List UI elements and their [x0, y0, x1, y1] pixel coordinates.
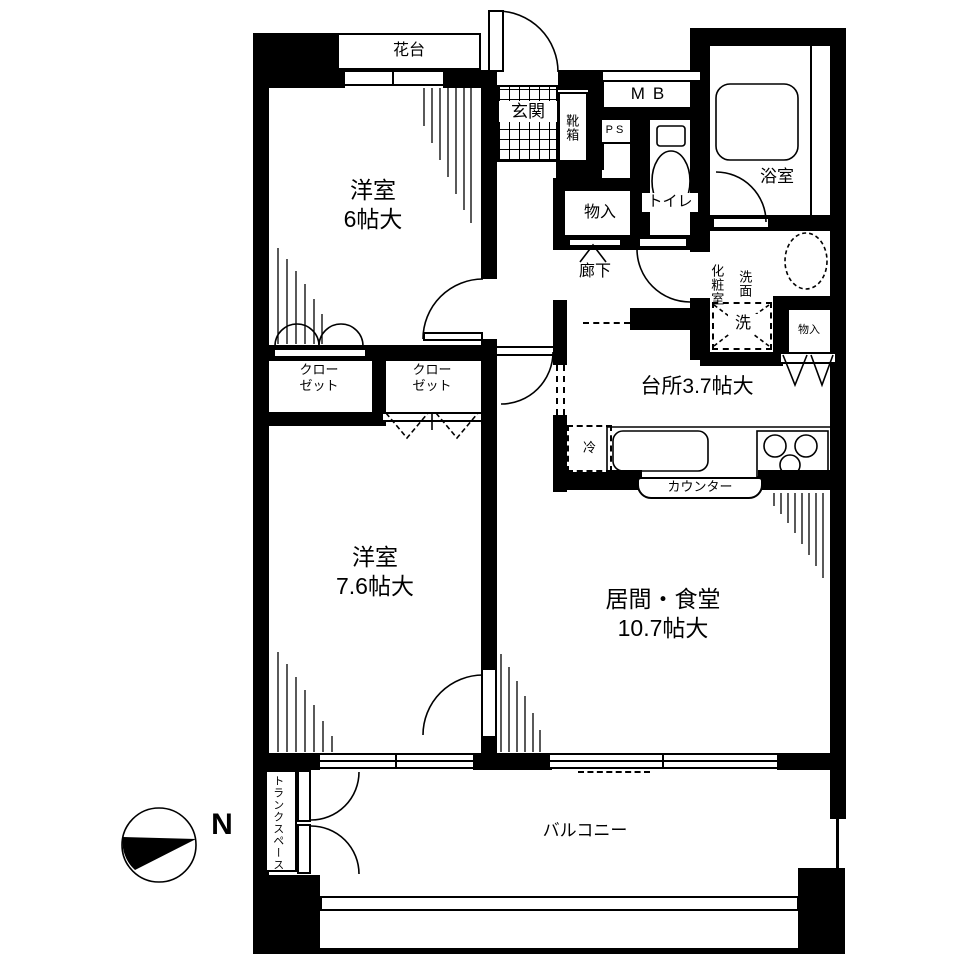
living-name: 居間・食堂 [553, 585, 773, 614]
entrance-door-arc [497, 11, 558, 72]
wash-storage-label: 物入 [786, 324, 832, 338]
bedroom6-door-arc [423, 279, 483, 339]
closet1-label: クロー ゼット [267, 362, 371, 395]
kitchen-counter-edge [607, 427, 830, 470]
living-size: 10.7帖大 [553, 614, 773, 643]
bathtub [716, 84, 798, 160]
kitchen-door-arc [501, 352, 553, 404]
bedroom76-name: 洋室 [295, 543, 455, 572]
closet1-line1: クロー [267, 362, 371, 378]
bedroom76-label: 洋室 7.6帖大 [295, 543, 455, 601]
refrigerator-label: 冷 [571, 440, 608, 456]
washstand-label: 洗面 [736, 243, 752, 325]
living-label: 居間・食堂 10.7帖大 [553, 585, 773, 643]
bedroom6-size: 6帖大 [308, 205, 438, 234]
closet2-label: クロー ゼット [383, 362, 481, 395]
counter-label: カウンター [637, 479, 763, 495]
bath-label: 浴室 [742, 166, 812, 187]
meter-box-label: MB [603, 83, 700, 104]
bedroom76-size: 7.6帖大 [295, 572, 455, 601]
closet1-line2: ゼット [267, 378, 371, 394]
entrance-label: 玄関 [499, 101, 557, 122]
toilet-label: トイレ [642, 193, 698, 212]
shoe-box-label: 靴箱 [563, 98, 579, 158]
kitchen-sink [613, 431, 708, 471]
bedroom76-door-arc [423, 675, 483, 735]
trunk-space-label: トランクスペース [270, 775, 284, 869]
stove-burner [795, 435, 817, 457]
floor-plan: 花台 玄関 靴箱 MB PS トイレ 浴室 化粧室 洗面 洗 物入 物入 廊下 … [0, 0, 960, 960]
balcony-label: バルコニー [495, 820, 675, 841]
washer-label: 洗 [728, 314, 758, 334]
closet2-line1: クロー [383, 362, 481, 378]
flower-stand-label: 花台 [337, 41, 481, 61]
bedroom6-name: 洋室 [308, 176, 438, 205]
trunk-door-arc [311, 826, 359, 874]
washbasin [785, 233, 827, 289]
plan-linework [0, 0, 960, 960]
powder-room-label: 化粧室 [708, 237, 724, 333]
compass-needle [123, 837, 196, 870]
compass-north-label: N [200, 806, 244, 844]
hall-storage-fold-symbol [580, 245, 606, 262]
kitchen-label: 台所3.7帖大 [597, 374, 797, 400]
hall-storage-label: 物入 [565, 203, 635, 223]
toilet-door-arc [637, 249, 690, 302]
toilet-tank [657, 126, 685, 146]
stove-burner [764, 435, 786, 457]
closet-bifold-symbol [275, 324, 363, 346]
bedroom6-label: 洋室 6帖大 [308, 176, 438, 234]
closet2-line2: ゼット [383, 378, 481, 394]
trunk-door-arc [311, 772, 359, 820]
hallway-label: 廊下 [564, 262, 626, 282]
pipe-space-label: PS [600, 124, 632, 138]
stove-burner [780, 455, 800, 475]
